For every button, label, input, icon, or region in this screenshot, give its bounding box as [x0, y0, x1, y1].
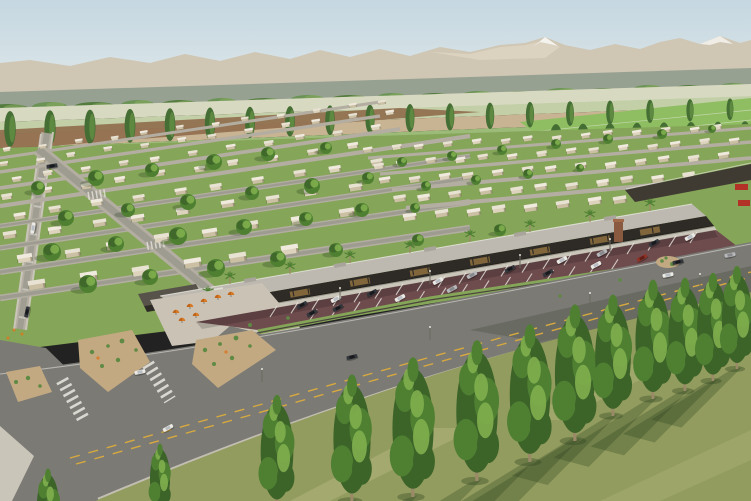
shrub — [558, 294, 562, 298]
flowering-plant — [13, 329, 16, 332]
shrub — [248, 323, 252, 327]
shrub — [664, 256, 667, 259]
shrub — [14, 380, 18, 384]
scene-canvas — [0, 0, 751, 501]
shrub — [120, 339, 125, 344]
red-storefront-sign — [735, 184, 748, 190]
shrub — [248, 344, 252, 348]
shrub — [106, 344, 110, 348]
aerial-rendering-masterplan-community — [0, 0, 751, 501]
shrub — [234, 336, 239, 341]
shrub — [38, 384, 42, 388]
entry-tower — [614, 220, 623, 242]
flowering-plant — [7, 337, 10, 340]
shrub — [212, 362, 216, 366]
flowering-plant — [21, 333, 24, 336]
shrub — [218, 342, 222, 346]
shrub — [134, 348, 138, 352]
flowering-plant — [224, 350, 227, 353]
shrub — [116, 358, 120, 362]
red-storefront-sign — [738, 200, 750, 206]
shrub — [286, 316, 290, 320]
shrub — [26, 376, 30, 380]
shrub — [100, 364, 104, 368]
shrub — [90, 350, 94, 354]
shrub — [618, 278, 622, 282]
shrub — [230, 356, 234, 360]
shrub — [203, 348, 207, 352]
flowering-plant — [96, 356, 99, 359]
shrub — [660, 259, 664, 263]
